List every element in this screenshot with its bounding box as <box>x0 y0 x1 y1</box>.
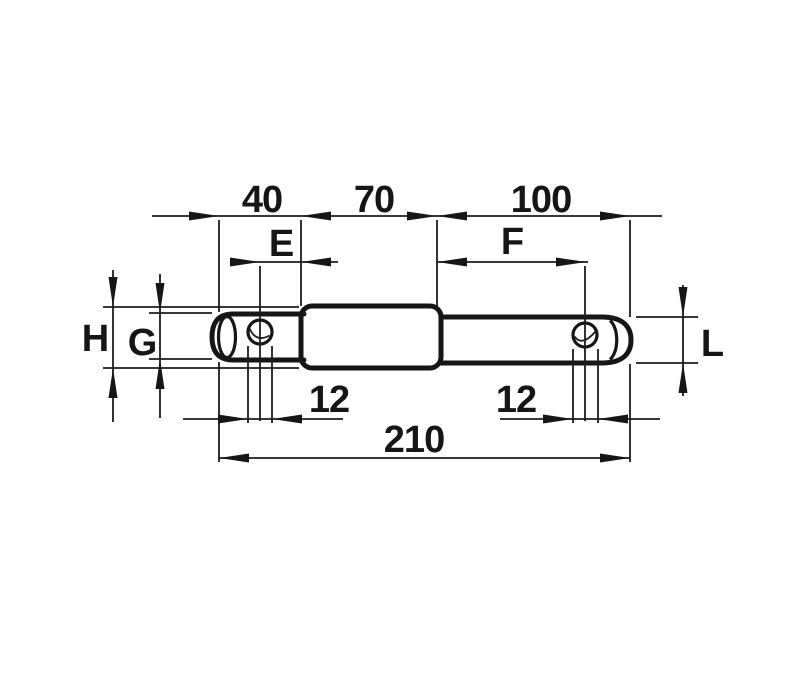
arrowhead <box>109 277 118 307</box>
dim-label-12-right: 12 <box>496 379 536 421</box>
arrowhead <box>218 415 248 424</box>
dim-label-12-left: 12 <box>309 379 349 421</box>
arrowhead <box>230 258 260 267</box>
dim-label-g: G <box>128 322 157 364</box>
dim-label-210: 210 <box>384 419 444 461</box>
arrowhead <box>301 258 331 267</box>
dim-label-70: 70 <box>354 179 394 221</box>
arrowhead <box>679 363 688 393</box>
arrowhead <box>437 212 467 221</box>
arrowhead <box>156 283 165 313</box>
dim-label-100: 100 <box>511 179 571 221</box>
stepped-pin-dimension-drawing: 40 70 100 E F H G L 12 12 210 <box>0 0 800 682</box>
arrowhead <box>598 415 628 424</box>
arrowhead <box>679 287 688 317</box>
arrowhead <box>189 212 219 221</box>
arrowhead <box>301 212 331 221</box>
pin-right-end-face <box>610 321 617 360</box>
pin-middle-section-outline <box>301 306 441 368</box>
arrowhead <box>272 415 302 424</box>
arrowhead <box>600 454 630 463</box>
arrowhead <box>600 212 630 221</box>
arrowhead <box>156 359 165 389</box>
dim-label-l: L <box>701 323 724 365</box>
arrowhead <box>543 415 573 424</box>
arrowhead <box>407 212 437 221</box>
arrowhead <box>556 258 586 267</box>
dim-label-40: 40 <box>242 179 282 221</box>
dim-label-e: E <box>269 223 293 265</box>
dim-label-f: F <box>501 221 523 263</box>
arrowhead <box>437 258 467 267</box>
dim-label-h: H <box>82 318 108 360</box>
arrowhead <box>109 368 118 398</box>
technical-drawing-canvas: 40 70 100 E F H G L 12 12 210 <box>0 0 800 682</box>
arrowhead <box>219 454 249 463</box>
pin-left-end-face <box>219 317 236 358</box>
pin-right-section-outline <box>441 317 631 363</box>
